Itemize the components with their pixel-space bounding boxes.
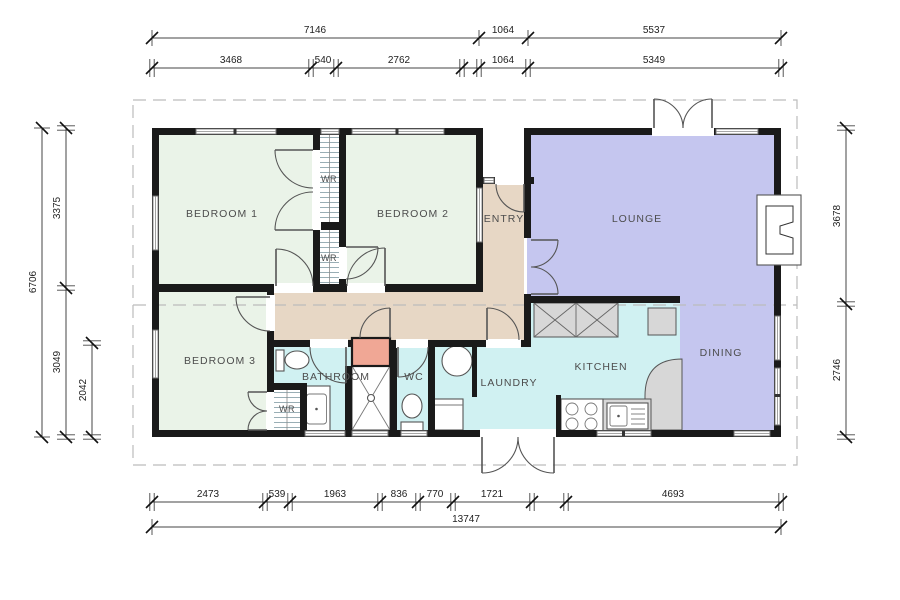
- label-entry: ENTRY: [484, 213, 524, 225]
- window-entry-sidelight: [484, 178, 494, 183]
- toilet-bowl-wc: [402, 394, 422, 418]
- window-bathroom-bottom: [305, 431, 345, 436]
- floor-plan-page: BEDROOM 1 BEDROOM 2 BEDROOM 3 ENTRY LOUN…: [0, 0, 900, 600]
- label-kitchen: KITCHEN: [574, 361, 627, 373]
- window-wc-bottom: [401, 431, 427, 436]
- floor-plan-drawing: BEDROOM 1 BEDROOM 2 BEDROOM 3 ENTRY LOUN…: [0, 0, 900, 600]
- toilet-tank-bathroom: [276, 350, 284, 371]
- room-dining: [680, 296, 778, 434]
- dim-left-bottom: 3049: [52, 350, 63, 373]
- window-dining-right-1: [775, 316, 780, 360]
- dim-top-outer-0: 7146: [304, 25, 327, 36]
- label-wr-3: WR: [279, 404, 295, 414]
- label-laundry: LAUNDRY: [481, 377, 538, 389]
- toilet-tank-wc: [401, 422, 423, 431]
- label-bedroom1: BEDROOM 1: [186, 208, 258, 220]
- dim-bottom-total: 13747: [452, 514, 480, 525]
- label-bedroom3: BEDROOM 3: [184, 355, 256, 367]
- window-bedroom2-top: [352, 129, 444, 134]
- dim-top-inner-2: 2762: [388, 55, 411, 66]
- washing-machine: [433, 399, 463, 430]
- kitchen-sink-unit: [607, 403, 648, 429]
- laundry-tub: [442, 346, 472, 376]
- dim-top-inner-0: 3468: [220, 55, 243, 66]
- dim-bottom-inner-2: 1963: [324, 489, 347, 500]
- dim-bottom-inner-6: 4693: [662, 489, 685, 500]
- window-shower-bottom: [352, 431, 388, 436]
- sink-drain-dot: [617, 415, 620, 418]
- dim-bottom-inner-5: 1721: [481, 489, 504, 500]
- dim-right-top: 3678: [832, 204, 843, 227]
- window-bedroom1-left: [153, 196, 158, 250]
- dim-top-outer-1: 1064: [492, 25, 515, 36]
- label-wr-2: WR: [321, 253, 337, 263]
- window-kitchen-bottom: [597, 431, 651, 436]
- door-lounge-french: [654, 99, 712, 128]
- door-laundry-exterior-double: [482, 437, 554, 473]
- window-bedroom1-top: [196, 129, 276, 134]
- fireplace: [757, 195, 801, 265]
- window-wr-top: [321, 129, 339, 134]
- dim-bottom-inner-0: 2473: [197, 489, 220, 500]
- hot-water-cupboard: [352, 338, 390, 366]
- dim-top-inner-3: 1064: [492, 55, 515, 66]
- vanity-drain-dot: [315, 408, 318, 411]
- dim-bottom-inner-1: 539: [269, 489, 286, 500]
- kitchen-bench-box: [648, 308, 676, 335]
- label-dining: DINING: [700, 347, 743, 359]
- dim-top-outer-2: 5537: [643, 25, 666, 36]
- dim-left-inner: 2042: [78, 378, 89, 401]
- dim-top-inner-4: 5349: [643, 55, 666, 66]
- room-fills: [152, 128, 778, 437]
- label-bathroom: BATHROOM: [302, 371, 370, 383]
- window-dining-right-2: [775, 368, 780, 425]
- shower-drain: [368, 395, 375, 402]
- window-dining-bottom: [734, 431, 770, 436]
- dim-left-top: 3375: [52, 196, 63, 219]
- wc-fixtures: [401, 394, 423, 431]
- window-entry-inner: [477, 188, 482, 242]
- dim-top-inner-1: 540: [315, 55, 332, 66]
- dim-bottom-inner-3: 836: [391, 489, 408, 500]
- label-lounge: LOUNGE: [612, 213, 662, 225]
- label-wc: WC: [404, 371, 424, 383]
- dim-left-outer: 6706: [28, 270, 39, 293]
- label-wr-1: WR: [321, 174, 337, 184]
- label-bedroom2: BEDROOM 2: [377, 208, 449, 220]
- dim-right-bottom: 2746: [832, 358, 843, 381]
- window-bedroom3-left: [153, 330, 158, 378]
- toilet-bowl-bathroom: [285, 351, 309, 369]
- dim-bottom-inner-4: 770: [427, 489, 444, 500]
- window-lounge-top: [716, 129, 758, 134]
